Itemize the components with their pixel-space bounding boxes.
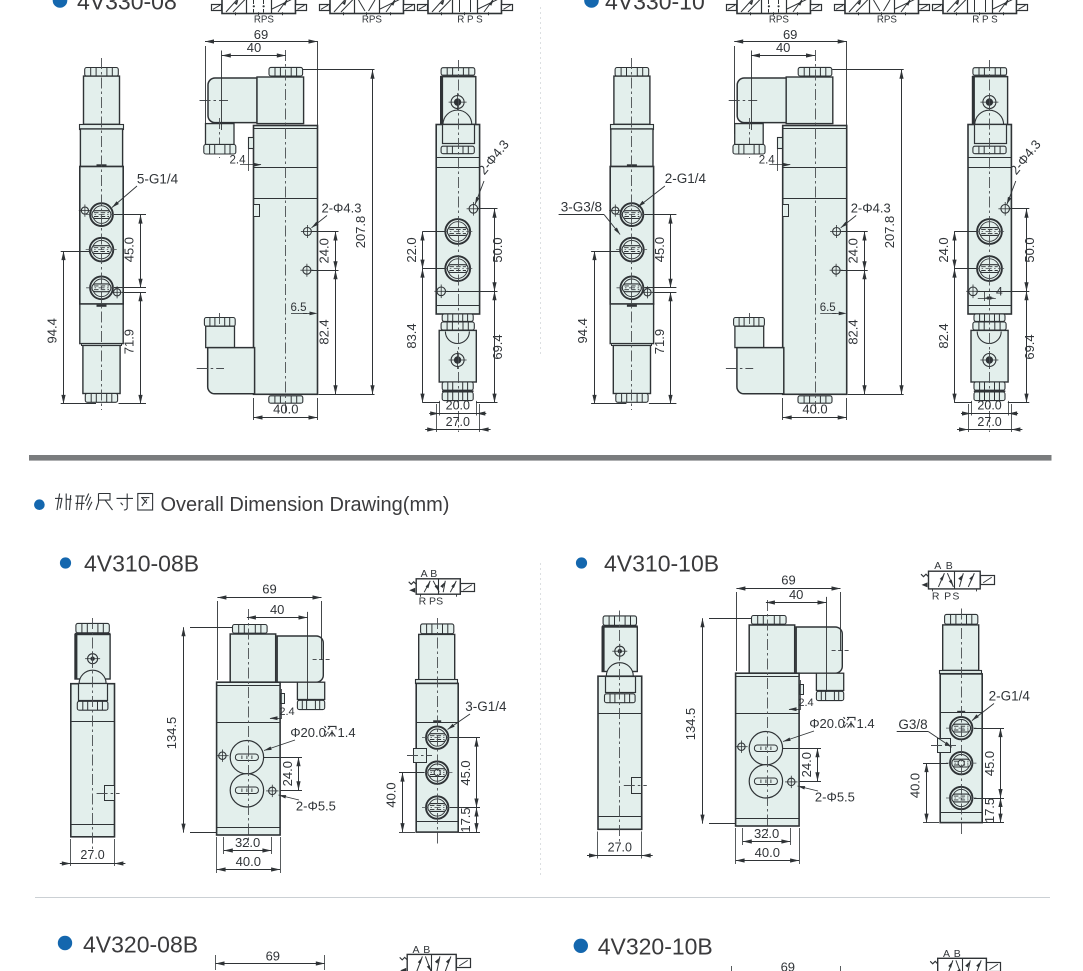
svg-text:32.0: 32.0 bbox=[235, 835, 260, 850]
svg-text:40.0: 40.0 bbox=[755, 845, 780, 860]
svg-text:S: S bbox=[952, 590, 959, 602]
svg-text:4V330-08: 4V330-08 bbox=[77, 0, 177, 15]
svg-text:45.0: 45.0 bbox=[122, 237, 137, 262]
svg-text:4V310-08B: 4V310-08B bbox=[84, 551, 199, 577]
svg-text:2-Φ4.3: 2-Φ4.3 bbox=[322, 201, 362, 216]
svg-text:1.4: 1.4 bbox=[338, 725, 356, 740]
svg-text:40.0: 40.0 bbox=[802, 402, 827, 417]
svg-text:40.0: 40.0 bbox=[273, 402, 298, 417]
svg-text:B: B bbox=[946, 560, 953, 572]
svg-text:4V320-10B: 4V320-10B bbox=[598, 934, 713, 960]
svg-text:24.0: 24.0 bbox=[936, 237, 951, 262]
svg-text:4V320-08B: 4V320-08B bbox=[83, 932, 198, 958]
svg-text:40.0: 40.0 bbox=[907, 773, 922, 798]
svg-text:71.9: 71.9 bbox=[652, 329, 667, 354]
svg-text:2-Φ4.3: 2-Φ4.3 bbox=[475, 137, 512, 178]
svg-text:40.0: 40.0 bbox=[383, 782, 398, 807]
svg-text:RPS: RPS bbox=[769, 15, 790, 26]
svg-text:69: 69 bbox=[781, 573, 795, 588]
svg-text:P: P bbox=[429, 596, 436, 608]
svg-text:82.4: 82.4 bbox=[936, 323, 951, 348]
svg-text:40: 40 bbox=[789, 587, 803, 602]
svg-text:4V330-10: 4V330-10 bbox=[605, 0, 705, 15]
svg-text:17.5: 17.5 bbox=[982, 798, 997, 823]
svg-text:5-G1/4: 5-G1/4 bbox=[137, 172, 179, 187]
svg-text:Overall Dimension Drawing(mm): Overall Dimension Drawing(mm) bbox=[161, 494, 450, 516]
svg-text:69: 69 bbox=[781, 959, 795, 971]
svg-text:22.0: 22.0 bbox=[404, 237, 419, 262]
svg-text:RPS: RPS bbox=[877, 15, 898, 26]
svg-text:3-G3/8: 3-G3/8 bbox=[561, 200, 602, 215]
svg-text:P: P bbox=[944, 590, 951, 602]
svg-text:45.0: 45.0 bbox=[652, 237, 667, 262]
svg-text:50.0: 50.0 bbox=[490, 237, 505, 262]
svg-text:69.4: 69.4 bbox=[490, 334, 505, 359]
svg-text:69: 69 bbox=[266, 948, 280, 963]
svg-text:6.5: 6.5 bbox=[820, 302, 836, 314]
svg-text:S: S bbox=[436, 596, 443, 608]
svg-text:2-Φ4.3: 2-Φ4.3 bbox=[851, 201, 891, 216]
svg-text:A: A bbox=[934, 560, 941, 572]
svg-text:94.4: 94.4 bbox=[45, 318, 60, 343]
svg-text:2-Φ4.3: 2-Φ4.3 bbox=[1007, 137, 1044, 178]
svg-text:RPS: RPS bbox=[362, 15, 383, 26]
svg-text:27.0: 27.0 bbox=[80, 848, 104, 862]
svg-text:R: R bbox=[419, 596, 427, 608]
svg-text:R: R bbox=[932, 590, 940, 602]
svg-text:45.0: 45.0 bbox=[982, 751, 997, 776]
svg-text:Φ20.0: Φ20.0 bbox=[809, 716, 845, 731]
svg-text:207.8: 207.8 bbox=[353, 216, 368, 249]
svg-text:R P S: R P S bbox=[972, 15, 998, 26]
svg-text:R P S: R P S bbox=[457, 15, 483, 26]
svg-text:Φ20.0: Φ20.0 bbox=[290, 725, 326, 740]
svg-text:2-G1/4: 2-G1/4 bbox=[989, 689, 1031, 704]
svg-text:27.0: 27.0 bbox=[608, 841, 632, 855]
svg-text:83.4: 83.4 bbox=[404, 323, 419, 348]
svg-text:40: 40 bbox=[247, 40, 261, 55]
svg-text:RPS: RPS bbox=[254, 15, 275, 26]
svg-text:45.0: 45.0 bbox=[458, 760, 473, 785]
svg-text:134.5: 134.5 bbox=[683, 708, 698, 741]
svg-text:32.0: 32.0 bbox=[754, 826, 779, 841]
svg-text:24.0: 24.0 bbox=[317, 238, 332, 263]
svg-text:82.4: 82.4 bbox=[317, 319, 332, 344]
svg-text:134.5: 134.5 bbox=[164, 717, 179, 750]
svg-text:27.0: 27.0 bbox=[446, 415, 470, 429]
svg-text:24.0: 24.0 bbox=[799, 752, 814, 777]
svg-text:20.0: 20.0 bbox=[977, 399, 1001, 413]
svg-text:17.5: 17.5 bbox=[458, 807, 473, 832]
svg-text:69.4: 69.4 bbox=[1022, 334, 1037, 359]
svg-text:2-Φ5.5: 2-Φ5.5 bbox=[296, 799, 336, 814]
svg-text:40.0: 40.0 bbox=[236, 854, 261, 869]
svg-text:82.4: 82.4 bbox=[846, 319, 861, 344]
svg-text:2-G1/4: 2-G1/4 bbox=[665, 171, 707, 186]
svg-text:4V310-10B: 4V310-10B bbox=[604, 551, 719, 577]
svg-text:50.0: 50.0 bbox=[1022, 237, 1037, 262]
svg-text:1.4: 1.4 bbox=[857, 716, 875, 731]
svg-text:94.4: 94.4 bbox=[575, 318, 590, 343]
svg-text:40: 40 bbox=[776, 40, 790, 55]
svg-text:207.8: 207.8 bbox=[882, 216, 897, 249]
svg-text:6.5: 6.5 bbox=[291, 302, 307, 314]
svg-text:20.0: 20.0 bbox=[446, 399, 470, 413]
svg-text:3-G1/4: 3-G1/4 bbox=[465, 699, 507, 714]
svg-text:2-Φ5.5: 2-Φ5.5 bbox=[815, 790, 855, 805]
svg-text:71.9: 71.9 bbox=[122, 329, 137, 354]
svg-text:G3/8: G3/8 bbox=[898, 717, 927, 732]
svg-text:24.0: 24.0 bbox=[280, 761, 295, 786]
svg-text:24.0: 24.0 bbox=[846, 238, 861, 263]
svg-text:40: 40 bbox=[270, 602, 284, 617]
svg-text:27.0: 27.0 bbox=[977, 415, 1001, 429]
svg-text:69: 69 bbox=[262, 582, 276, 597]
